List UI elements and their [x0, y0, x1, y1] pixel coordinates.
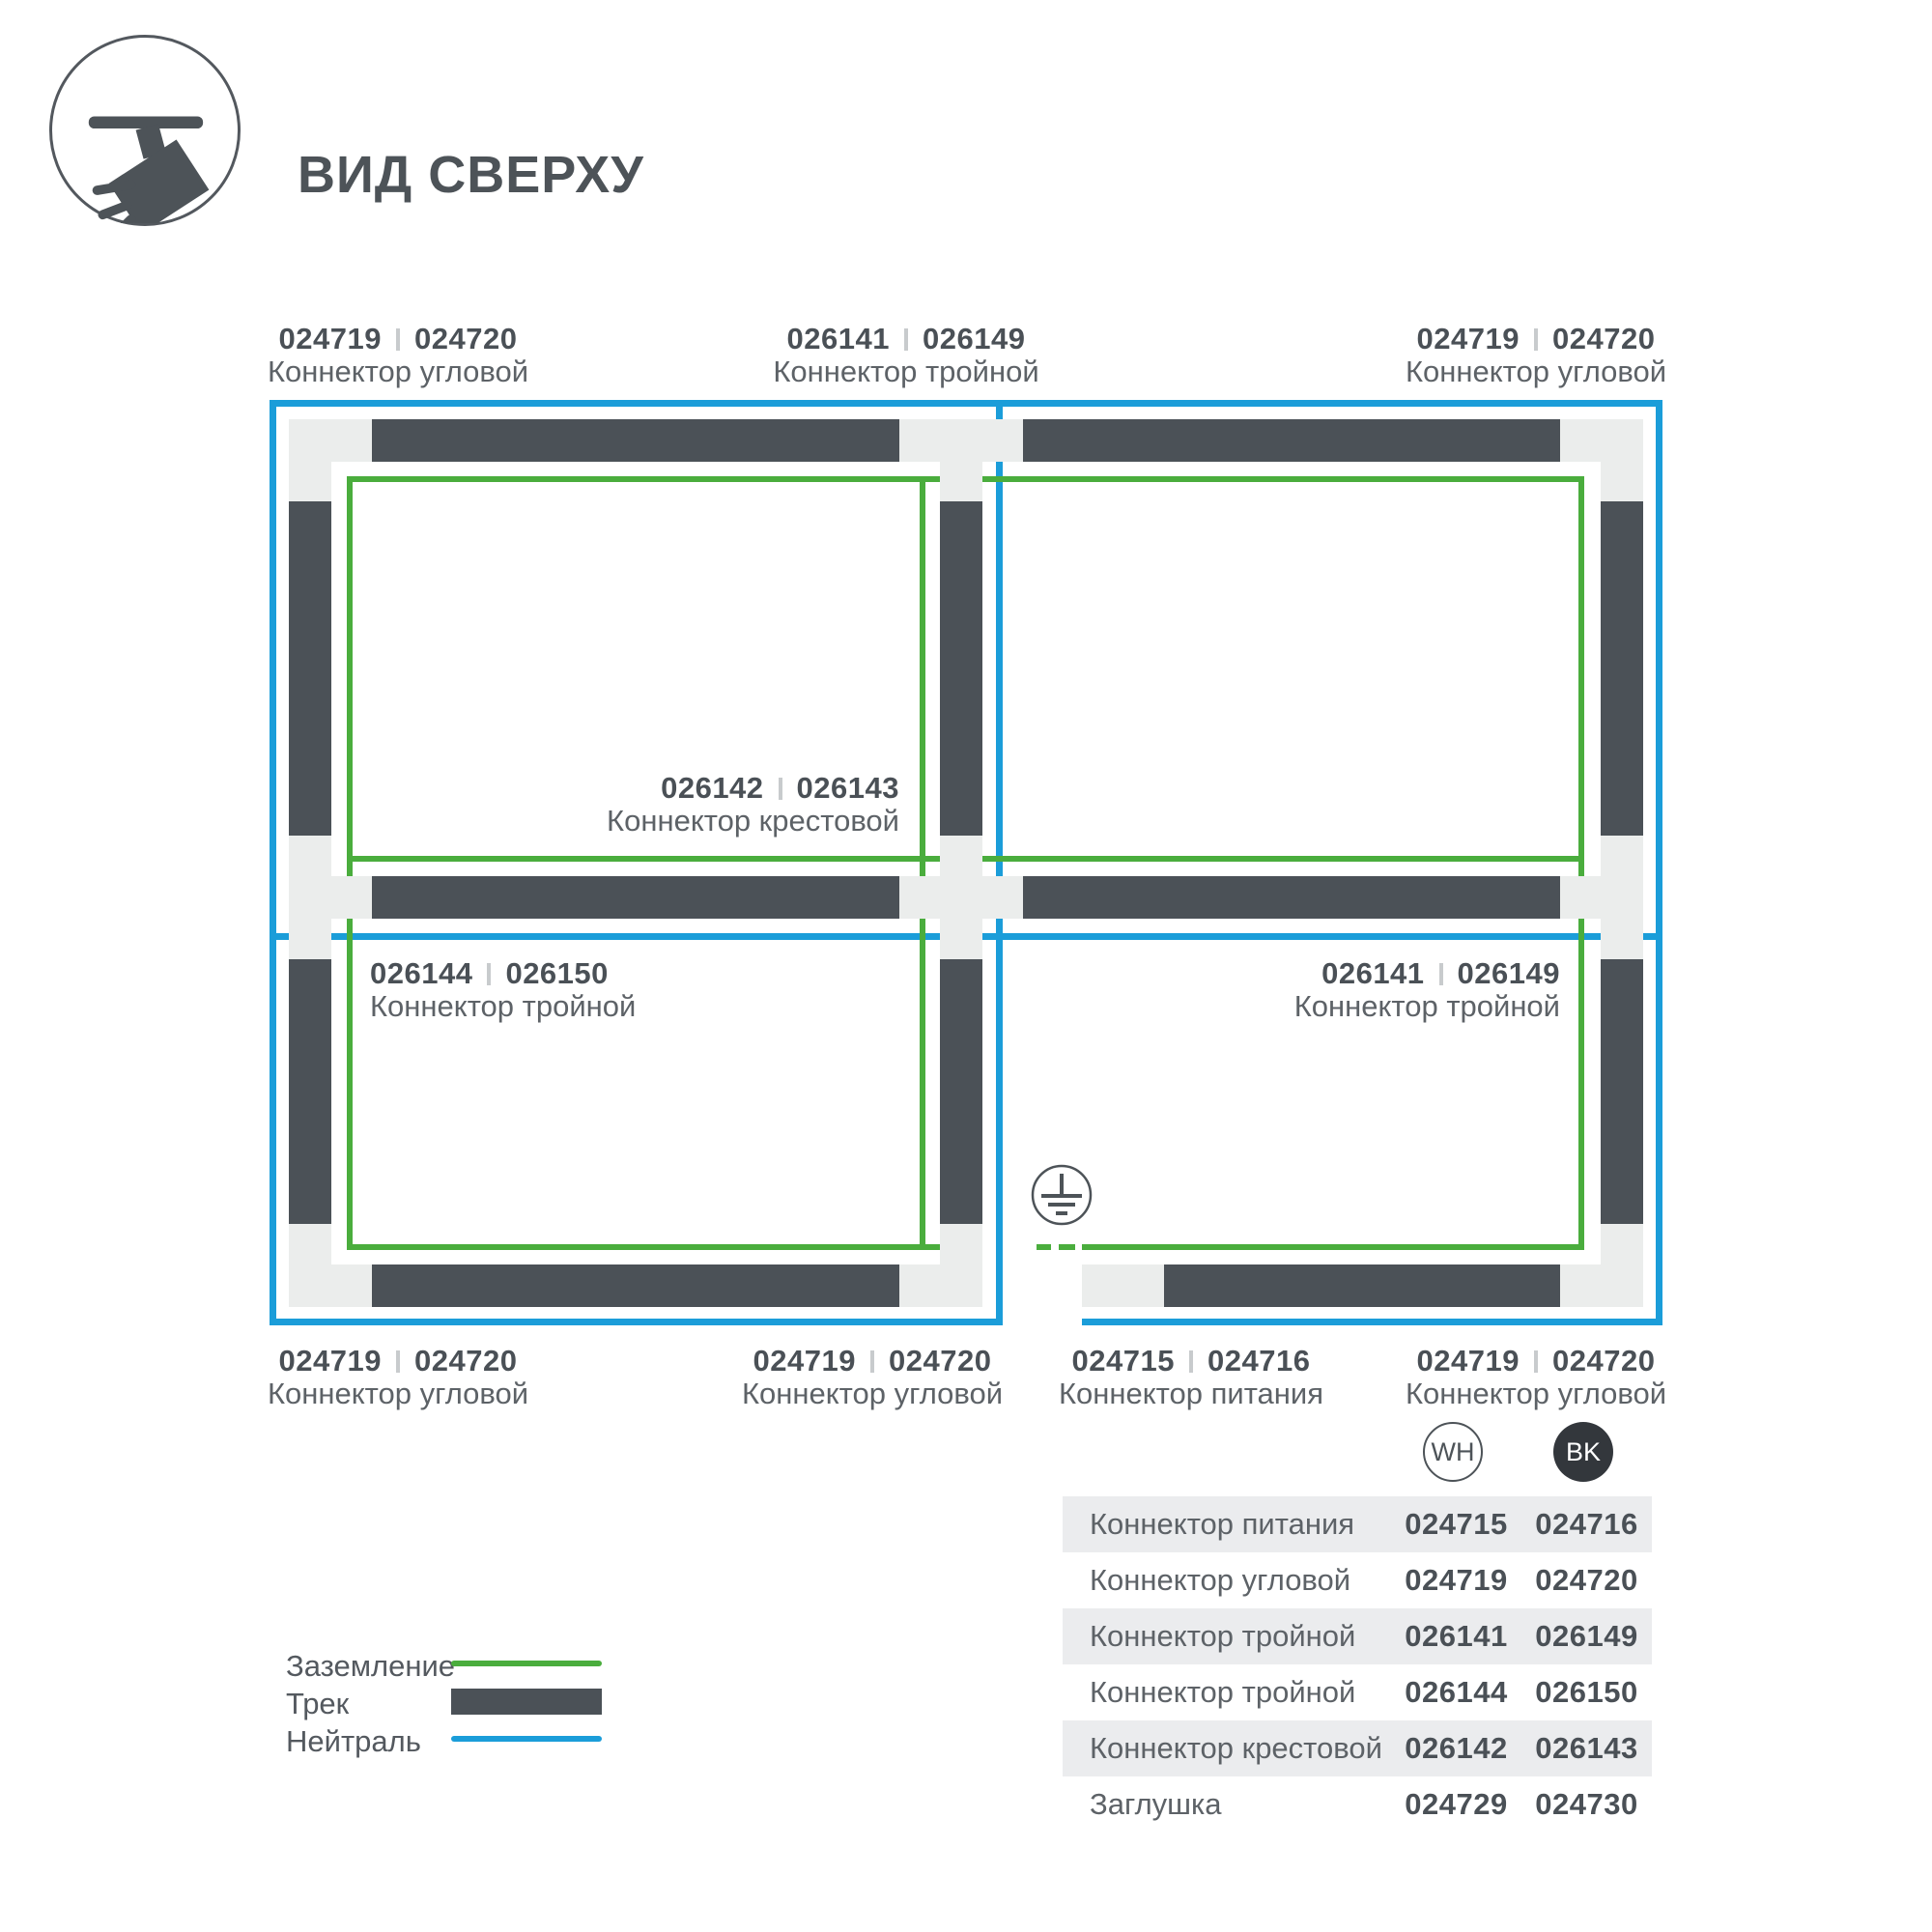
connector-name: Коннектор угловой: [205, 1378, 591, 1410]
separator: [396, 1350, 400, 1373]
article-numbers: 026141026149: [713, 323, 1099, 355]
part-number-wh: 024715: [1391, 1507, 1521, 1542]
part-number-wh: 026142: [1391, 1731, 1521, 1766]
connector-name: Коннектор тройной: [713, 355, 1099, 388]
separator: [396, 328, 400, 351]
track-segment: [940, 501, 982, 836]
table-row: Коннектор питания 024715 024716: [1063, 1496, 1652, 1552]
connector-name: Коннектор угловой: [1343, 355, 1729, 388]
neutral-line-top: [270, 400, 1662, 407]
separator: [1534, 1350, 1538, 1373]
earth-ground-icon: [1030, 1163, 1094, 1227]
neutral-line-bottom-left: [270, 1319, 1003, 1325]
part-number-bk: 024720: [1521, 1563, 1652, 1598]
legend-label: Нейтраль: [286, 1724, 421, 1759]
page: ВИД СВЕРХУ: [0, 0, 1932, 1932]
legend-label: Заземление: [286, 1649, 455, 1684]
article-numbers: 024719024720: [1343, 323, 1729, 355]
ground-line-left: [347, 476, 353, 1250]
connector-label-mid-right: 026141026149 Коннектор тройной: [1174, 957, 1560, 1023]
neutral-line-right: [1656, 400, 1662, 1325]
table-row: Коннектор угловой 024719 024720: [1063, 1552, 1652, 1608]
connector-label-power: 024715024716 Коннектор питания: [998, 1345, 1384, 1410]
part-number-bk: 026150: [1521, 1675, 1652, 1710]
separator: [1189, 1350, 1193, 1373]
connector-name: Коннектор крестовой: [513, 805, 899, 838]
ground-line-bottom-left: [347, 1244, 982, 1250]
legend: Заземление Трек Нейтраль: [283, 1645, 611, 1758]
separator: [904, 328, 908, 351]
track-segment: [289, 959, 331, 1224]
neutral-line-bottom-right: [1082, 1319, 1662, 1325]
track-segment: [1023, 419, 1560, 462]
connector-name: Коннектор тройной: [1174, 990, 1560, 1023]
ground-line-center-vertical: [920, 476, 925, 1250]
neutral-line-swatch: [451, 1736, 602, 1742]
article-numbers: 026142026143: [513, 772, 899, 805]
track-segment: [372, 419, 899, 462]
connector-label-top-left: 024719024720 Коннектор угловой: [205, 323, 591, 388]
ground-line-swatch: [451, 1661, 602, 1666]
connector-label-top-right: 024719024720 Коннектор угловой: [1343, 323, 1729, 388]
track-segment: [289, 501, 331, 836]
part-name: Заглушка: [1063, 1787, 1391, 1822]
connector-name: Коннектор угловой: [205, 355, 591, 388]
connector-name: Коннектор тройной: [370, 990, 756, 1023]
part-number-wh: 024719: [1391, 1563, 1521, 1598]
separator: [1534, 328, 1538, 351]
part-number-bk: 026143: [1521, 1731, 1652, 1766]
legend-item-track: Трек: [283, 1683, 611, 1720]
part-number-bk: 024730: [1521, 1787, 1652, 1822]
ground-line-right: [1578, 476, 1584, 1250]
track-segment: [1601, 959, 1643, 1224]
article-numbers: 026141026149: [1174, 957, 1560, 990]
table-row: Заглушка 024729 024730: [1063, 1776, 1652, 1833]
legend-item-neutral: Нейтраль: [283, 1720, 611, 1758]
part-number-wh: 026141: [1391, 1619, 1521, 1654]
neutral-line-center-vertical: [996, 400, 1003, 1325]
table-row: Коннектор тройной 026144 026150: [1063, 1664, 1652, 1720]
track-bar-swatch: [451, 1689, 602, 1715]
article-numbers: 024719024720: [205, 323, 591, 355]
connector-label-mid-left: 026144026150 Коннектор тройной: [370, 957, 756, 1023]
connector-label-top-center: 026141026149 Коннектор тройной: [713, 323, 1099, 388]
ground-line-dash-2: [1059, 1244, 1075, 1250]
part-name: Коннектор тройной: [1063, 1619, 1391, 1654]
separator: [870, 1350, 874, 1373]
connector-label-bottom-4: 024719024720 Коннектор угловой: [1343, 1345, 1729, 1410]
color-badge-black: BK: [1553, 1422, 1613, 1482]
part-number-wh: 024729: [1391, 1787, 1521, 1822]
table-row: Коннектор тройной 026141 026149: [1063, 1608, 1652, 1664]
parts-table-rows: Коннектор питания 024715 024716 Коннекто…: [1063, 1496, 1652, 1833]
part-name: Коннектор питания: [1063, 1507, 1391, 1542]
article-numbers: 024715024716: [998, 1345, 1384, 1378]
track-segment: [372, 1264, 899, 1307]
part-number-wh: 026144: [1391, 1675, 1521, 1710]
part-name: Коннектор крестовой: [1063, 1731, 1391, 1766]
legend-item-ground: Заземление: [283, 1645, 611, 1683]
track-segment: [940, 959, 982, 1224]
track-segment: [1601, 501, 1643, 836]
track-segment: [372, 876, 899, 919]
track-segment: [1164, 1264, 1560, 1307]
article-numbers: 024719024720: [1343, 1345, 1729, 1378]
part-number-bk: 024716: [1521, 1507, 1652, 1542]
ground-line-dash-1: [1037, 1244, 1051, 1250]
connector-label-bottom-1: 024719024720 Коннектор угловой: [205, 1345, 591, 1410]
part-name: Коннектор угловой: [1063, 1563, 1391, 1598]
article-numbers: 026144026150: [370, 957, 756, 990]
separator: [487, 963, 491, 985]
track-segment: [1023, 876, 1560, 919]
separator: [1439, 963, 1443, 985]
part-name: Коннектор тройной: [1063, 1675, 1391, 1710]
connector-name: Коннектор угловой: [1343, 1378, 1729, 1410]
ground-line-bottom-right: [1082, 1244, 1584, 1250]
article-numbers: 024719024720: [205, 1345, 591, 1378]
connector-name: Коннектор питания: [998, 1378, 1384, 1410]
connector-label-cross: 026142026143 Коннектор крестовой: [513, 772, 899, 838]
neutral-line-left: [270, 400, 276, 1325]
legend-label: Трек: [286, 1687, 349, 1721]
part-number-bk: 026149: [1521, 1619, 1652, 1654]
table-row: Коннектор крестовой 026142 026143: [1063, 1720, 1652, 1776]
separator: [779, 778, 782, 800]
color-badge-white: WH: [1423, 1422, 1483, 1482]
